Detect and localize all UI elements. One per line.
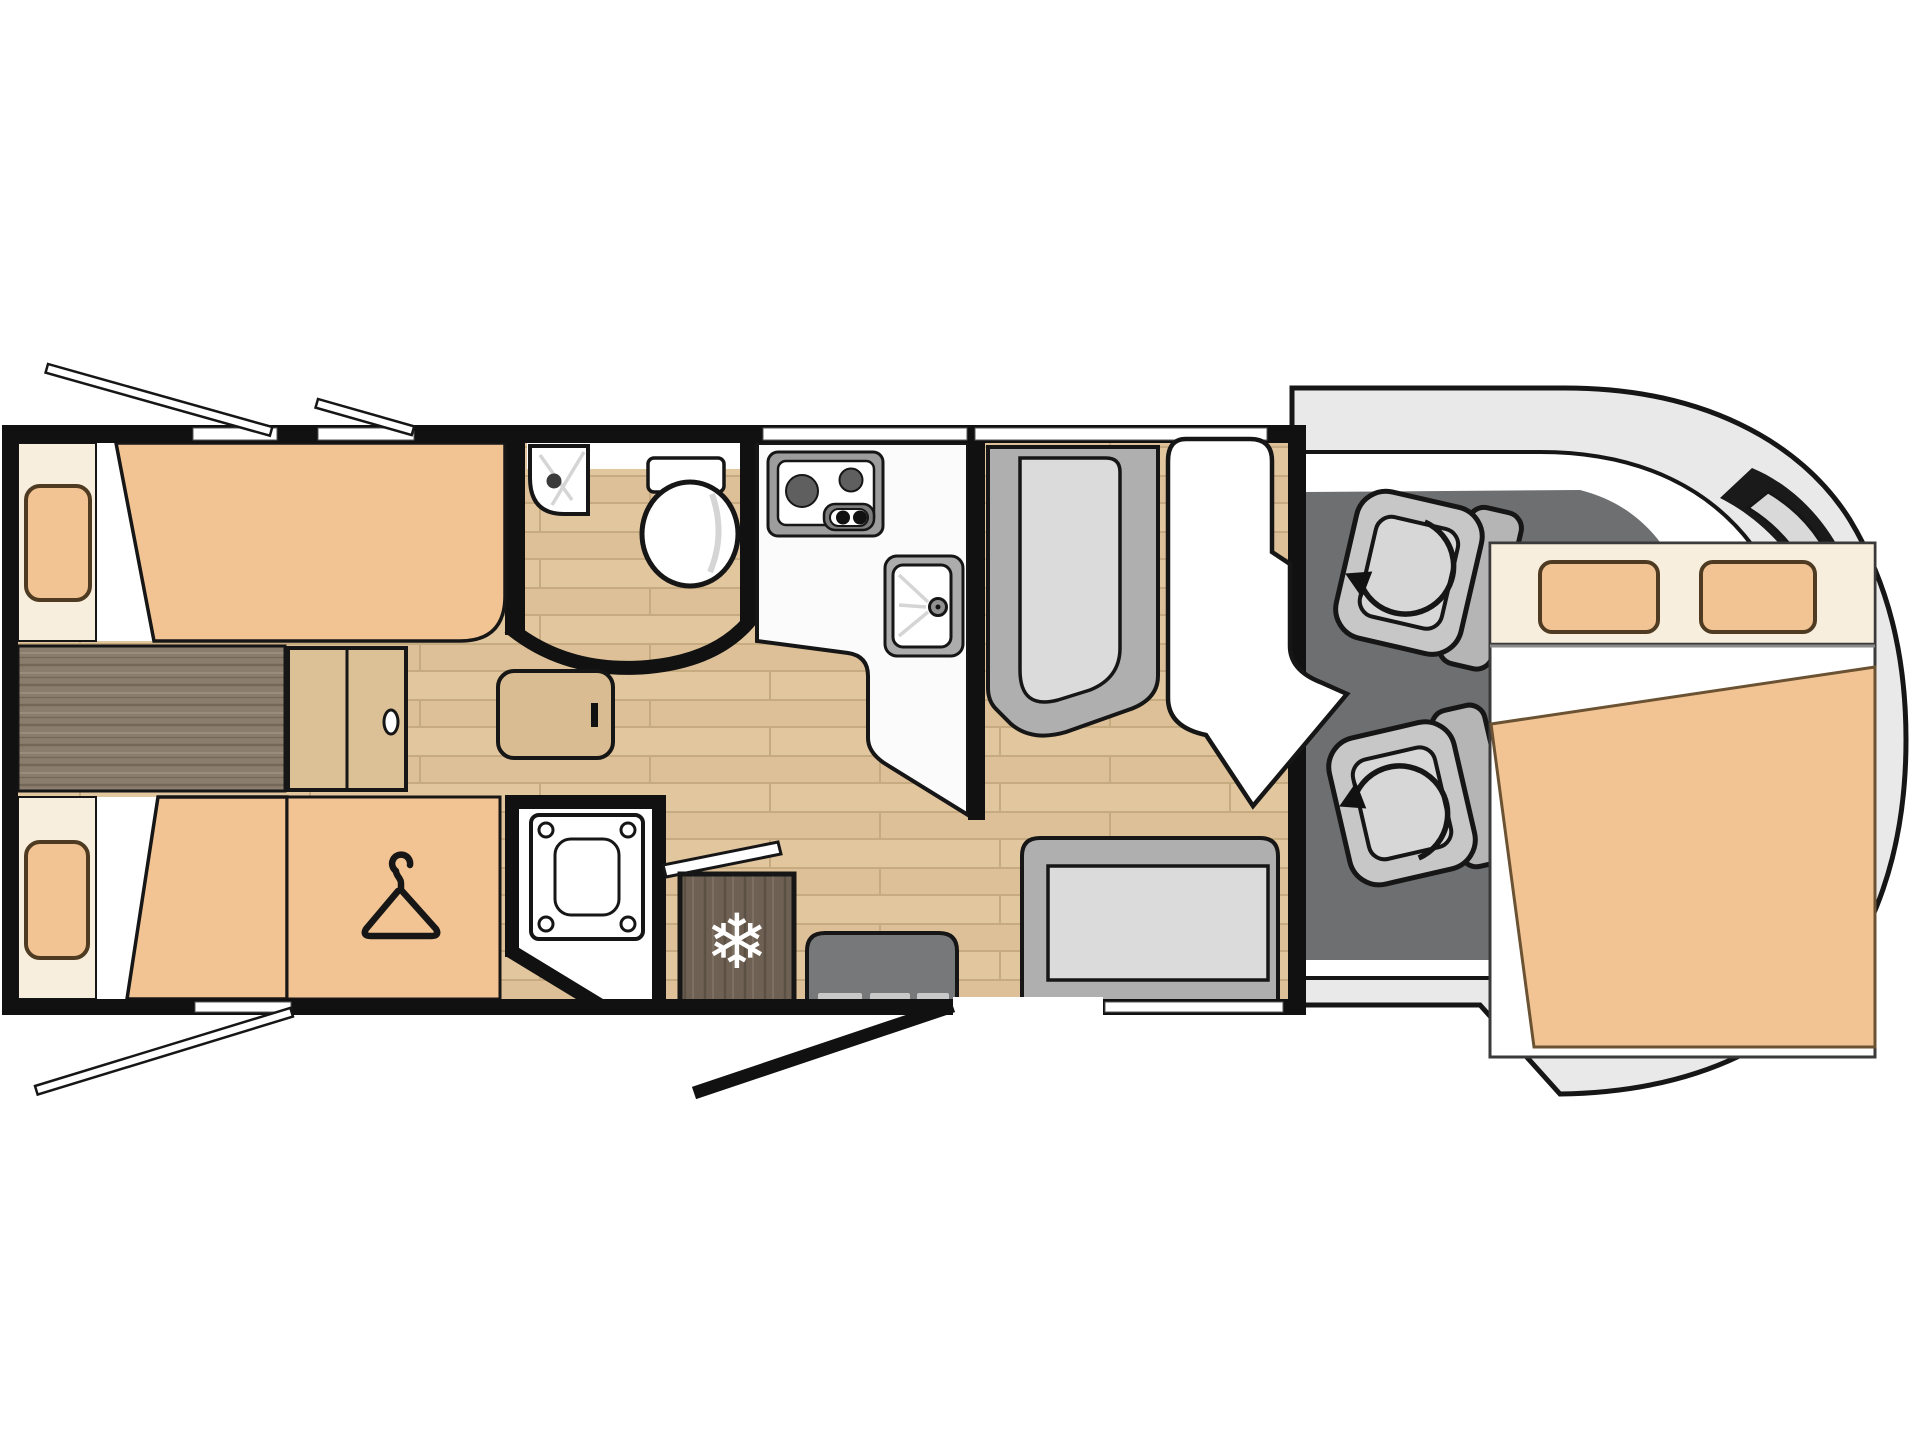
cabinet-handle bbox=[384, 710, 398, 734]
entrance-door-open bbox=[694, 1006, 953, 1093]
entry-step bbox=[807, 933, 957, 1003]
tray-corner-dot bbox=[539, 823, 553, 837]
hob-knob-left bbox=[836, 511, 850, 525]
sink-tap-dot bbox=[936, 605, 941, 610]
shower-wall-left bbox=[505, 795, 519, 957]
bathroom-wall-right bbox=[740, 443, 757, 625]
lounge-bench-forward-cushion bbox=[1020, 458, 1120, 702]
bedside-chest bbox=[18, 646, 285, 791]
window-bottom-1 bbox=[195, 1002, 291, 1012]
bed-top-duvet bbox=[116, 443, 505, 641]
window-stay-long bbox=[46, 364, 273, 436]
shower-wall-top bbox=[505, 795, 666, 809]
tray-corner-dot bbox=[621, 823, 635, 837]
overcab-bed bbox=[1490, 543, 1875, 1057]
window-lounge-bottom bbox=[1105, 1002, 1283, 1012]
window-kitchen bbox=[763, 428, 967, 440]
steps-cabinet bbox=[288, 648, 406, 790]
wardrobe bbox=[287, 797, 500, 999]
window-stay-bottom bbox=[35, 1008, 293, 1095]
lounge-bench-rear-cushion bbox=[1048, 866, 1268, 980]
tray-corner-dot bbox=[539, 917, 553, 931]
floorplan-canvas: ❄ bbox=[0, 0, 1920, 1440]
bed-top-pillow bbox=[26, 486, 90, 600]
hob bbox=[768, 452, 883, 536]
overcab-duvet bbox=[1491, 667, 1875, 1047]
tray-corner-dot bbox=[621, 917, 635, 931]
kitchen-sink bbox=[885, 556, 963, 656]
hob-burner-small bbox=[840, 469, 863, 492]
shower-drain bbox=[547, 474, 562, 489]
floorplan-svg: ❄ bbox=[0, 0, 1920, 1440]
snowflake-icon: ❄ bbox=[705, 897, 769, 986]
doorway-gap bbox=[953, 997, 1103, 1017]
hob-knob-right bbox=[853, 511, 867, 525]
bed-bottom-pillow bbox=[26, 842, 88, 958]
kitchen-lounge-partition bbox=[968, 443, 985, 820]
overcab-pillow-left bbox=[1540, 562, 1658, 632]
bathroom-wall-left bbox=[505, 443, 525, 635]
table-leg-mark bbox=[591, 703, 598, 727]
shower-wall-right bbox=[652, 795, 666, 999]
overcab-pillow-right bbox=[1701, 562, 1815, 632]
hob-burner-large bbox=[786, 475, 818, 507]
wall-left bbox=[2, 425, 18, 1015]
plan-root: ❄ bbox=[2, 364, 1906, 1095]
toilet bbox=[642, 482, 738, 586]
refrigerator: ❄ bbox=[680, 874, 794, 1002]
table bbox=[498, 671, 613, 758]
